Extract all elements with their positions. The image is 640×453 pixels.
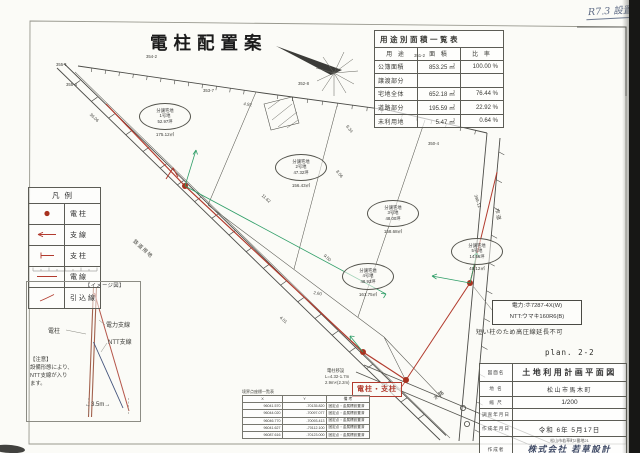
parcel-dividers xyxy=(208,92,442,398)
image-diagram-box xyxy=(26,281,141,422)
north-arrow xyxy=(276,46,358,96)
cell-use: 未利用地 xyxy=(375,114,418,128)
coord-note: 固定点・金属標設置済 xyxy=(327,417,370,424)
tb-label: 作成者 xyxy=(480,437,513,453)
table-row: 譲渡部分 xyxy=(375,74,504,88)
cell-area: 652.18 ㎡ xyxy=(418,87,461,101)
table-row: 96041.570 -70135.820 固定点・金属標設置済 xyxy=(243,403,370,410)
tb-label: 図面名 xyxy=(480,364,513,382)
utility-box-leader xyxy=(473,286,492,310)
coord-y: -70123.000 xyxy=(283,431,327,438)
dimension-label: ←3.5m→ xyxy=(85,402,110,408)
hatched-structure xyxy=(264,97,299,130)
plot-label-1: 分譲宅地 1号地 52.97坪 xyxy=(139,103,191,130)
power-line xyxy=(106,104,497,389)
pole-markers xyxy=(182,183,473,383)
legend-label: 支柱 xyxy=(65,246,101,267)
parcel-number: 350-4 xyxy=(428,141,439,146)
coord-note: 固定点・金属標設置済 xyxy=(327,403,370,410)
scan-black-strip xyxy=(629,0,640,453)
cell-area: 195.59 ㎡ xyxy=(418,101,461,115)
table-row: 道路部分 195.59 ㎡ 22.92 % xyxy=(375,101,504,115)
coord-y: -70097.077 xyxy=(283,410,327,417)
coord-x: 96087.616 xyxy=(243,431,283,438)
company-name: 株式会社 若草設計 xyxy=(513,444,626,453)
power-guy-label: 電力支線 xyxy=(106,320,130,329)
scan-edge-shade xyxy=(622,0,629,453)
plot-area-3: 158.68㎡ xyxy=(373,229,413,235)
area-col-ratio: 比 率 xyxy=(461,47,504,60)
parcel-number: 355-4 xyxy=(66,82,77,87)
area-col-use: 用 途 xyxy=(375,47,418,60)
plot-label-4: 分譲宅地 4号地 48.93坪 xyxy=(342,263,394,290)
plot-area-5: 48.12㎡ xyxy=(457,266,497,272)
plot-area-4: 161.75㎡ xyxy=(348,292,388,298)
plot-tsubo: 48.00坪 xyxy=(368,216,418,221)
image-diagram-title: 【イメージ図】 xyxy=(85,282,125,289)
legend-title: 凡例 xyxy=(29,188,101,204)
coord-col-y: Y xyxy=(283,396,327,403)
plot-tsubo: 52.97坪 xyxy=(140,119,190,124)
coord-y: -70135.820 xyxy=(283,403,327,410)
note-text: L=4.32-1.7m xyxy=(325,374,349,379)
plot-tsubo: 14.56坪 xyxy=(452,254,502,259)
cell-area xyxy=(418,74,461,88)
drawing-title: 土地利用計画平面図 xyxy=(513,364,627,382)
tb-label: 縮 尺 xyxy=(480,397,513,409)
plot-area-1: 175.12㎡ xyxy=(145,132,185,138)
cell-ratio: 76.44 % xyxy=(461,87,504,101)
note-line: 設備形態により、 xyxy=(30,364,73,372)
author-cell: 松山市若草町2番地21 株式会社 若草設計 代表取締役 石丸勝利 xyxy=(513,437,627,453)
table-row: 96087.616 -70123.000 固定点・金属標設置済 xyxy=(243,431,370,438)
cell-use: 宅地全体 xyxy=(375,87,418,101)
coord-y: -70093.413 xyxy=(283,417,327,424)
guy-wire-arrows xyxy=(185,150,479,352)
plot-tsubo: 47.32坪 xyxy=(276,170,326,175)
coord-x: 96046.770 xyxy=(243,417,283,424)
coord-note: 固定点・金属標設置済 xyxy=(327,431,370,438)
cell-use: 譲渡部分 xyxy=(375,74,418,88)
utility-id-box: 電力:ホ7287-4X(W) NTT:ウマキ160R6(B) xyxy=(492,300,582,325)
table-row: 96041.627 -70112.100 固定点・金属標設置済 xyxy=(243,424,370,431)
legend-row: 電柱 xyxy=(29,204,101,225)
table-row: 宅地全体 652.18 ㎡ 76.44 % xyxy=(375,87,504,101)
legend-row: 支柱 xyxy=(29,246,101,267)
cell-area: 5.47 ㎡ xyxy=(418,114,461,128)
table-row: 96046.770 -70093.413 固定点・金属標設置済 xyxy=(243,417,370,424)
pole-label: 電柱 xyxy=(48,326,60,335)
parcel-number: 351-2 xyxy=(414,53,425,58)
caution-note: 【注意】 設備形態により、 NTT支線が入り ます。 xyxy=(30,356,73,388)
area-table-title: 用途別面積一覧表 xyxy=(375,31,504,48)
area-summary-table: 用途別面積一覧表 用 途 面 積 比 率 公簿面積 853.25 ㎡ 100.0… xyxy=(374,30,504,128)
scanned-plan-page: R7.3 設置 電柱配置案 用途別面積一覧表 用 途 面 積 比 率 公簿面積 … xyxy=(0,0,640,453)
parcel-number: 354-2 xyxy=(146,54,157,59)
coord-col-x: X xyxy=(243,396,283,403)
tb-label: 作成年月日 xyxy=(480,421,513,437)
coord-x: 96041.570 xyxy=(243,403,283,410)
pole-icon xyxy=(35,209,59,218)
cell-ratio: 0.64 % xyxy=(461,114,504,128)
plot-tsubo: 48.93坪 xyxy=(343,279,393,284)
parcel-number: 352-8 xyxy=(298,81,309,86)
survey-date xyxy=(513,409,627,421)
tb-label: 調査年月日 xyxy=(480,409,513,421)
cell-area: 853.25 ㎡ xyxy=(418,60,461,74)
legend-row: 支線 xyxy=(29,225,101,246)
cell-ratio xyxy=(461,74,504,88)
ntt-id: NTT:ウマキ160R6(B) xyxy=(493,312,581,323)
wire-icon xyxy=(35,272,59,281)
site-location: 松山市馬木町 xyxy=(513,382,627,397)
ntt-guy-label: NTT支線 xyxy=(108,337,132,346)
coordinate-table: X Y 備 考 96041.570 -70135.820 固定点・金属標設置済 … xyxy=(242,395,370,439)
power-id: 電力:ホ7287-4X(W) xyxy=(493,301,581,312)
parcel-number: 355-1 xyxy=(56,62,67,67)
plot-area-2: 156.43㎡ xyxy=(281,183,321,189)
note-line: NTT支線が入り xyxy=(30,372,73,380)
drawing-scale: 1/200 xyxy=(513,397,627,409)
plan-number: plan. 2-2 xyxy=(545,348,595,357)
cell-ratio: 100.00 % xyxy=(461,60,504,74)
tb-label: 地 名 xyxy=(480,382,513,397)
plot-label-5: 分譲宅地 5号地 14.56坪 xyxy=(451,238,503,265)
parcel-number: 353-7 xyxy=(203,88,214,93)
note-line: 【注意】 xyxy=(30,356,73,364)
guy-wire-icon xyxy=(35,230,59,239)
table-row: 未利用地 5.47 ㎡ 0.64 % xyxy=(375,114,504,128)
cell-ratio: 22.92 % xyxy=(461,101,504,115)
plot-label-3: 分譲宅地 3号地 48.00坪 xyxy=(367,200,419,227)
created-date: 令和 6年 5月17日 xyxy=(513,421,627,437)
page-title: 電柱配置案 xyxy=(150,30,268,55)
table-row: 96044.020 -70097.077 固定点・金属標設置済 xyxy=(243,410,370,417)
title-block: 図面名 土地利用計画平面図 地 名 松山市馬木町 縮 尺 1/200 調査年月日… xyxy=(479,363,627,453)
note-line: ます。 xyxy=(30,380,73,388)
high-voltage-note: 短い柱のため高圧線延長不可 xyxy=(476,327,563,336)
note-text: 2.9m×(2.2m) xyxy=(325,380,349,385)
cell-use: 道路部分 xyxy=(375,101,418,115)
plot-label-2: 分譲宅地 2号地 47.32坪 xyxy=(275,154,327,181)
coord-col-note: 備 考 xyxy=(327,396,370,403)
legend-label: 電柱 xyxy=(65,204,101,225)
coord-x: 96044.020 xyxy=(243,410,283,417)
coord-y: -70112.100 xyxy=(283,424,327,431)
cell-use: 公簿面積 xyxy=(375,60,418,74)
legend-label: 支線 xyxy=(65,225,101,246)
coord-x: 96041.627 xyxy=(243,424,283,431)
coord-note: 固定点・金属標設置済 xyxy=(327,424,370,431)
table-row: 公簿面積 853.25 ㎡ 100.00 % xyxy=(375,60,504,74)
coord-note: 固定点・金属標設置済 xyxy=(327,410,370,417)
strut-icon xyxy=(35,251,59,260)
